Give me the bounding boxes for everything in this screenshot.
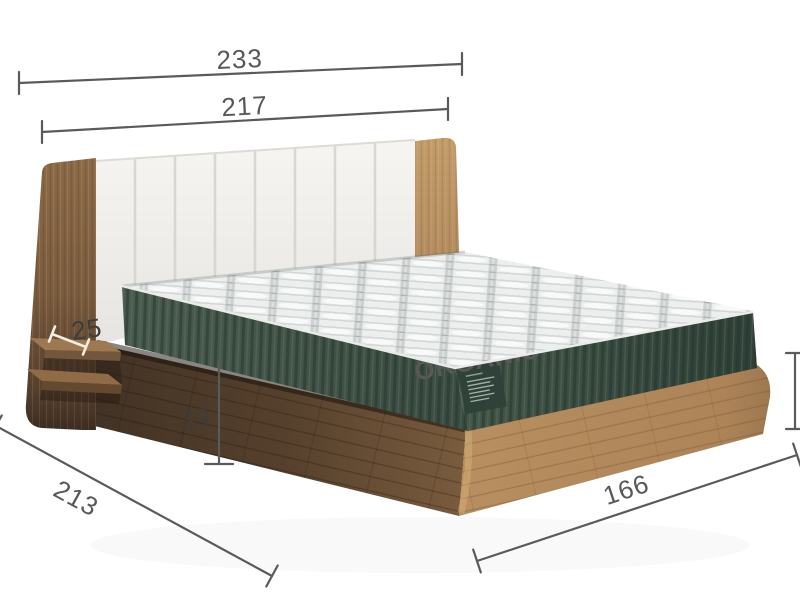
dim-value-base-height: 39 xyxy=(178,402,212,435)
bed-illustration: ORGANIC 233 217 25 xyxy=(0,0,800,600)
dim-value-headboard-width: 217 xyxy=(221,90,269,122)
dimension-mattress-height-clipped xyxy=(786,353,800,429)
dim-value-total-width: 233 xyxy=(216,43,264,75)
floor-shadow xyxy=(90,517,750,573)
dimension-headboard-width: 217 xyxy=(42,90,448,143)
dim-value-shelf-depth: 25 xyxy=(69,312,104,346)
bed-dimension-diagram: ORGANIC 233 217 25 xyxy=(0,0,800,600)
dimension-total-width: 233 xyxy=(19,43,462,94)
dim-tick-left xyxy=(0,416,2,437)
